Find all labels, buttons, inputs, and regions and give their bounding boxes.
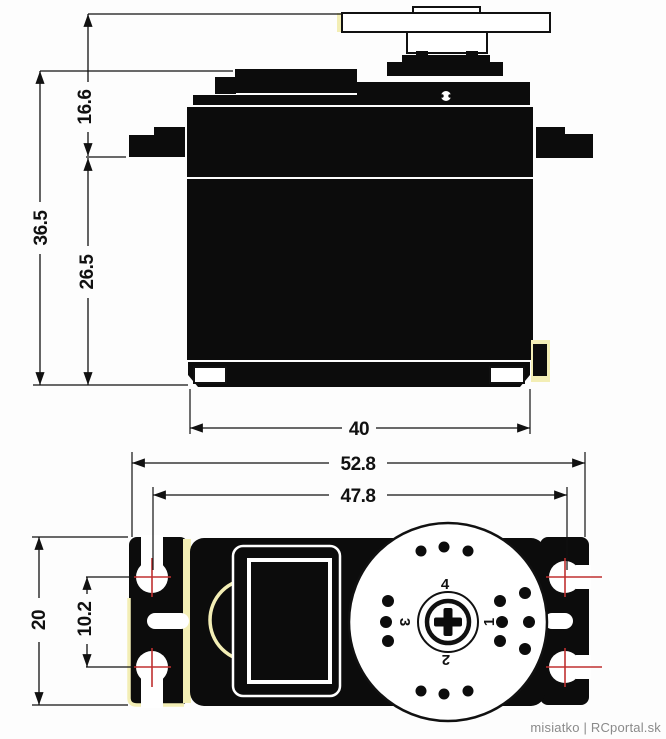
case-step-small	[215, 77, 236, 94]
dim-label-tab-to-bottom: 26.5	[77, 254, 98, 290]
side-view	[88, 7, 593, 387]
body-upper-half	[187, 107, 533, 177]
case-step-left	[235, 69, 357, 93]
flange-relief-slot-right	[544, 613, 573, 629]
horn-hole	[439, 542, 450, 553]
horn-hole	[463, 546, 474, 557]
bottom-view: 4 3 2 1	[86, 523, 602, 721]
horn-hole	[416, 546, 427, 557]
mount-tab-step-left	[154, 127, 185, 136]
horn-hole	[519, 587, 531, 599]
horn-hole	[494, 595, 506, 607]
flange-relief-slot-left	[147, 613, 189, 629]
servo-horn-arm	[342, 13, 550, 32]
dimple-dot-left	[440, 94, 443, 97]
output-shaft	[407, 32, 487, 53]
watermark-text: misiatko | RCportal.sk	[530, 720, 661, 735]
horn-hole	[519, 643, 531, 655]
horn-hole	[416, 686, 427, 697]
mount-tab-step-right	[536, 127, 565, 135]
phillips-screw-slot-v	[444, 608, 453, 636]
mount-tab-right	[536, 134, 593, 158]
horn-hole	[380, 616, 392, 628]
horn-hole	[494, 635, 506, 647]
horn-hole	[439, 689, 450, 700]
dimple-dot-right	[448, 94, 451, 97]
dim-label-hole-pitch: 10.2	[75, 602, 96, 637]
dim-label-horn-to-tab: 16.6	[75, 90, 96, 125]
horn-number-3: 3	[396, 618, 413, 626]
dim-label-hole-span: 47.8	[341, 486, 376, 507]
dim-label-flange-width: 52.8	[341, 454, 376, 475]
gear-cap	[387, 62, 503, 76]
bottom-case-strip	[188, 362, 530, 387]
shaft-flange	[402, 55, 490, 62]
bottom-notch-right	[490, 367, 524, 383]
horn-hole	[382, 595, 394, 607]
cable-connector	[533, 344, 547, 376]
body-lower-half	[187, 179, 533, 360]
horn-hole	[523, 616, 535, 628]
dim-label-body-depth: 20	[29, 610, 50, 630]
case-top-bar	[193, 95, 530, 105]
horn-hole	[382, 635, 394, 647]
mount-tab-left	[129, 135, 185, 157]
horn-hole	[463, 686, 474, 697]
horn-number-1: 1	[481, 618, 498, 626]
dim-label-overall-height: 36.5	[31, 210, 52, 246]
label-plate-inner	[249, 560, 330, 682]
servo-dimension-drawing: 36.5 16.6 26.5 40	[0, 0, 666, 739]
drawing-canvas: 36.5 16.6 26.5 40	[0, 0, 666, 739]
bottom-notch-left	[194, 367, 226, 383]
horn-number-4: 4	[441, 576, 450, 593]
horn-number-2: 2	[442, 651, 450, 668]
dim-label-body-width: 40	[349, 419, 369, 440]
